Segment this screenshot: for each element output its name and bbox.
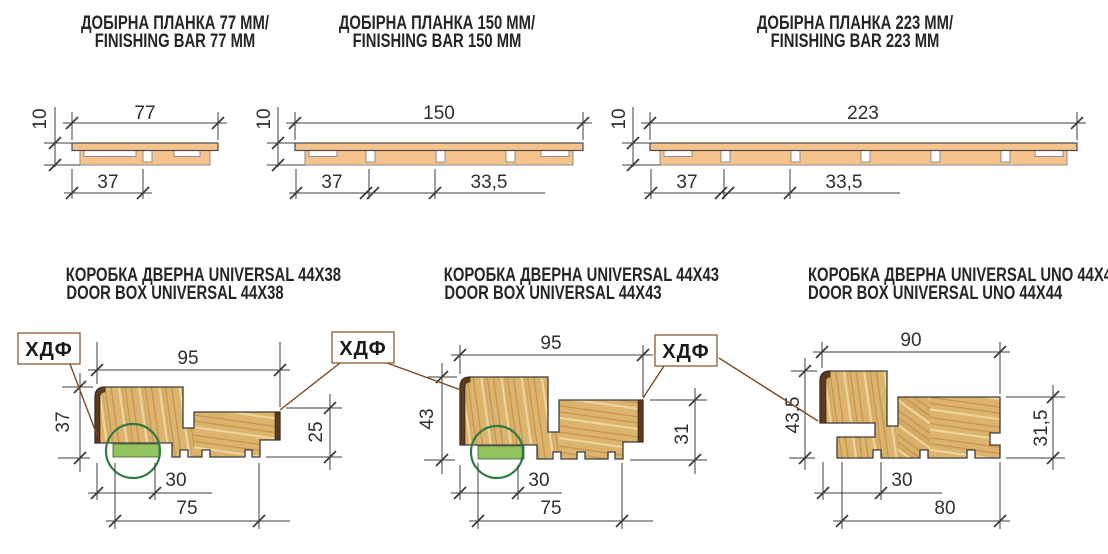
finishing-bar-77: 77 10 37 xyxy=(30,103,227,199)
dim-right: 31 xyxy=(672,423,693,444)
bar-top-strip xyxy=(650,143,1077,151)
hdf-edge-right xyxy=(638,400,643,442)
dim-width: 77 xyxy=(134,103,155,124)
bar-top-strip xyxy=(295,143,583,151)
drawing-linework: 77 10 37 150 10 37 33,5 223 10 37 33,5 xyxy=(0,0,1108,554)
dim-width: 150 xyxy=(423,103,455,124)
dim-thickness: 10 xyxy=(609,108,630,129)
technical-drawing-sheet: ДОБІРНА ПЛАНКА 77 ММ/ FINISHING BAR 77 M… xyxy=(0,0,1108,554)
dim-left: 43 xyxy=(417,408,438,429)
dim-bottom: 80 xyxy=(934,498,955,519)
door-box-universal-44x38: 95 37 25 30 75 xyxy=(53,342,342,529)
hdf-label: ХДФ xyxy=(662,341,709,363)
dim-width: 223 xyxy=(847,103,879,124)
bar-lower-profile xyxy=(305,151,573,166)
dim-thickness: 10 xyxy=(254,108,275,129)
dim-left: 37 xyxy=(53,411,74,432)
seal-strip xyxy=(478,446,524,459)
dim-groove: 30 xyxy=(891,470,912,491)
dim-groove: 30 xyxy=(528,470,549,491)
dim-seg2: 33,5 xyxy=(826,172,863,193)
dim-top: 95 xyxy=(177,348,198,369)
dim-thickness: 10 xyxy=(30,108,51,129)
dim-groove: 30 xyxy=(165,470,186,491)
hdf-leader-line xyxy=(280,363,461,410)
hdf-edge-right xyxy=(275,412,280,440)
dim-top: 95 xyxy=(540,333,561,354)
dim-bottom: 75 xyxy=(540,498,561,519)
bar-top-strip xyxy=(72,143,218,151)
dim-right: 25 xyxy=(306,421,327,442)
dim-left: 43,5 xyxy=(783,397,804,434)
finishing-bar-223: 223 10 37 33,5 xyxy=(609,103,1086,199)
hdf-label: ХДФ xyxy=(25,339,72,361)
hdf-label: ХДФ xyxy=(339,338,386,360)
dim-seg1: 37 xyxy=(321,172,342,193)
dim-seg2: 33,5 xyxy=(471,172,508,193)
bar-lower-profile xyxy=(660,151,1067,166)
dim-right: 31,5 xyxy=(1031,410,1052,447)
dim-seg1: 37 xyxy=(97,172,118,193)
dim-bottom: 75 xyxy=(176,498,197,519)
seal-strip xyxy=(113,444,159,457)
bar-lower-profile xyxy=(80,151,210,166)
door-box-universal-uno-44x44: 90 43,5 31,5 30 80 xyxy=(783,330,1065,529)
finishing-bar-150: 150 10 37 33,5 xyxy=(254,103,592,199)
dim-seg1: 37 xyxy=(676,172,697,193)
dim-top: 90 xyxy=(900,330,921,351)
hdf-callout-2: ХДФ xyxy=(280,332,461,410)
